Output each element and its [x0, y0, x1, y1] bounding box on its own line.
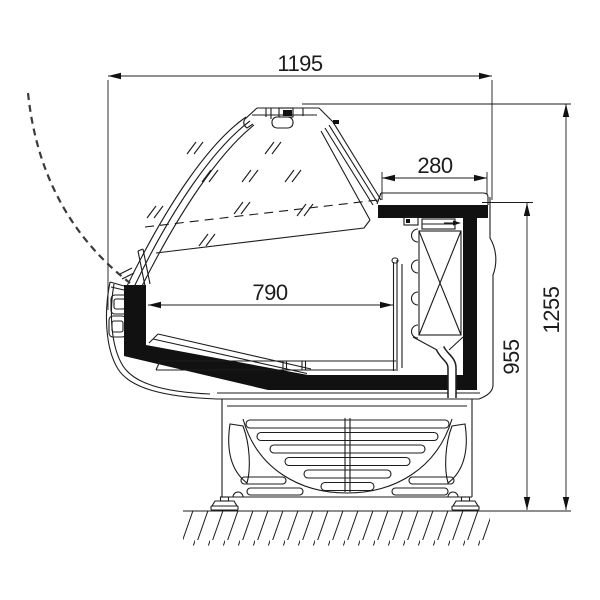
rear-glass-panel — [156, 122, 381, 253]
dimension-display-depth: 790 — [148, 280, 393, 308]
dim-label-worktop-depth: 280 — [417, 153, 452, 178]
drawing-page: 1195 280 790 955 125 — [0, 0, 600, 600]
technical-drawing-counter-cross-section: 1195 280 790 955 125 — [0, 0, 600, 600]
arrowhead-down-icon — [524, 497, 530, 510]
rear-worktop — [377, 193, 488, 205]
arrowhead-left-icon — [382, 175, 395, 181]
arrowhead-up-icon — [524, 203, 530, 216]
canopy — [244, 108, 339, 128]
front-glass-curved — [127, 117, 254, 288]
dim-label-overall-height: 1255 — [539, 286, 564, 333]
dimension-overall-width: 1195 — [108, 51, 492, 310]
glass-swing-arc — [28, 93, 130, 283]
arrowhead-right-icon — [380, 302, 393, 308]
dimension-worktop-height: 955 — [482, 203, 533, 511]
arrowhead-left-icon — [148, 302, 161, 308]
evaporator-coil — [404, 217, 463, 350]
arrowhead-left-icon — [108, 73, 121, 79]
drain-pipe — [440, 348, 452, 398]
dim-label-worktop-height: 955 — [499, 339, 524, 374]
ventilation-grille — [229, 418, 467, 495]
rear-duct-panel — [392, 258, 402, 371]
dim-label-overall-width: 1195 — [277, 51, 323, 76]
arrowhead-down-icon — [563, 497, 569, 510]
dim-label-display-depth: 790 — [252, 280, 287, 305]
arrowhead-right-icon — [479, 73, 492, 79]
adjustable-feet — [211, 497, 479, 510]
ground-hatching — [183, 511, 571, 546]
arrowhead-right-icon — [474, 175, 487, 181]
cavity-ceiling-line — [156, 220, 370, 253]
arrowhead-up-icon — [563, 104, 569, 117]
airflow-arrow-icon — [453, 221, 461, 226]
drawing-root: 1195 280 790 955 125 — [28, 51, 571, 546]
